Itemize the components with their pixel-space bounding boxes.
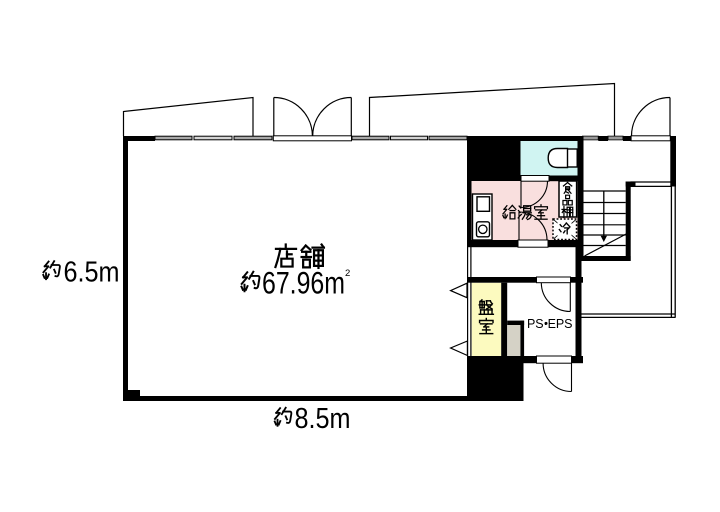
svg-text:2: 2 (345, 268, 350, 279)
svg-text:PS·EPS: PS·EPS (527, 317, 573, 331)
svg-text:6.5m: 6.5m (64, 257, 120, 289)
svg-text:8.5m: 8.5m (295, 403, 351, 435)
svg-text:67.96m: 67.96m (262, 265, 345, 301)
